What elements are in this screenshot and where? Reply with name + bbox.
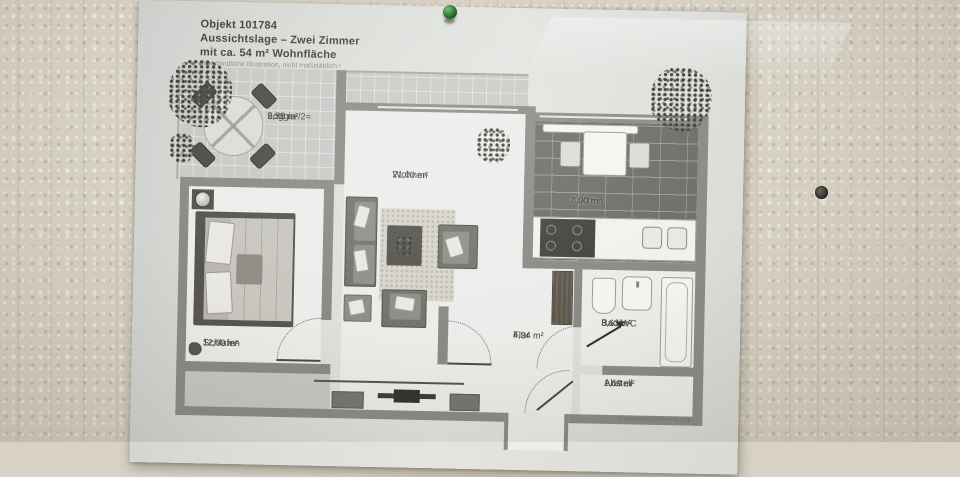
wall-segment bbox=[573, 269, 582, 327]
push-pin bbox=[443, 5, 457, 19]
balcony-slab bbox=[176, 371, 331, 409]
chair-icon bbox=[560, 141, 582, 167]
screw-hole bbox=[815, 186, 828, 199]
sink-icon bbox=[640, 225, 693, 254]
armchair-icon bbox=[437, 224, 478, 269]
washbasin-icon bbox=[622, 276, 653, 311]
nightstand-icon bbox=[192, 189, 214, 209]
toilet-icon bbox=[592, 278, 617, 314]
decor-icon bbox=[189, 342, 202, 355]
floor-plan: Loggia 5,50 m²/2= 2,75 m² Wohnen 21,00 m… bbox=[171, 59, 720, 454]
wardrobe-icon bbox=[551, 271, 573, 325]
wall-segment bbox=[504, 413, 509, 450]
ottoman-icon bbox=[343, 294, 372, 322]
pillow-icon bbox=[205, 271, 233, 314]
armchair-icon bbox=[381, 289, 427, 328]
cabinet-icon bbox=[449, 394, 479, 412]
sofa-icon bbox=[344, 196, 378, 287]
wall-segment bbox=[437, 306, 448, 364]
stove-icon bbox=[540, 218, 596, 257]
pillow-icon bbox=[205, 220, 235, 265]
dining-table-icon bbox=[582, 131, 627, 176]
wall-segment bbox=[321, 189, 334, 320]
wall-segment bbox=[564, 414, 569, 451]
tv-icon bbox=[394, 389, 420, 403]
cabinet-icon bbox=[331, 391, 363, 409]
bed-icon bbox=[193, 211, 295, 327]
room-abstell bbox=[579, 374, 693, 416]
floorplan-paper: Objekt 101784 Aussichtslage – Zwei Zimme… bbox=[129, 0, 747, 475]
entry-vestibule bbox=[508, 413, 565, 451]
bathtub-icon bbox=[659, 277, 693, 368]
coffee-table-icon bbox=[386, 225, 422, 266]
chair-icon bbox=[629, 142, 651, 168]
